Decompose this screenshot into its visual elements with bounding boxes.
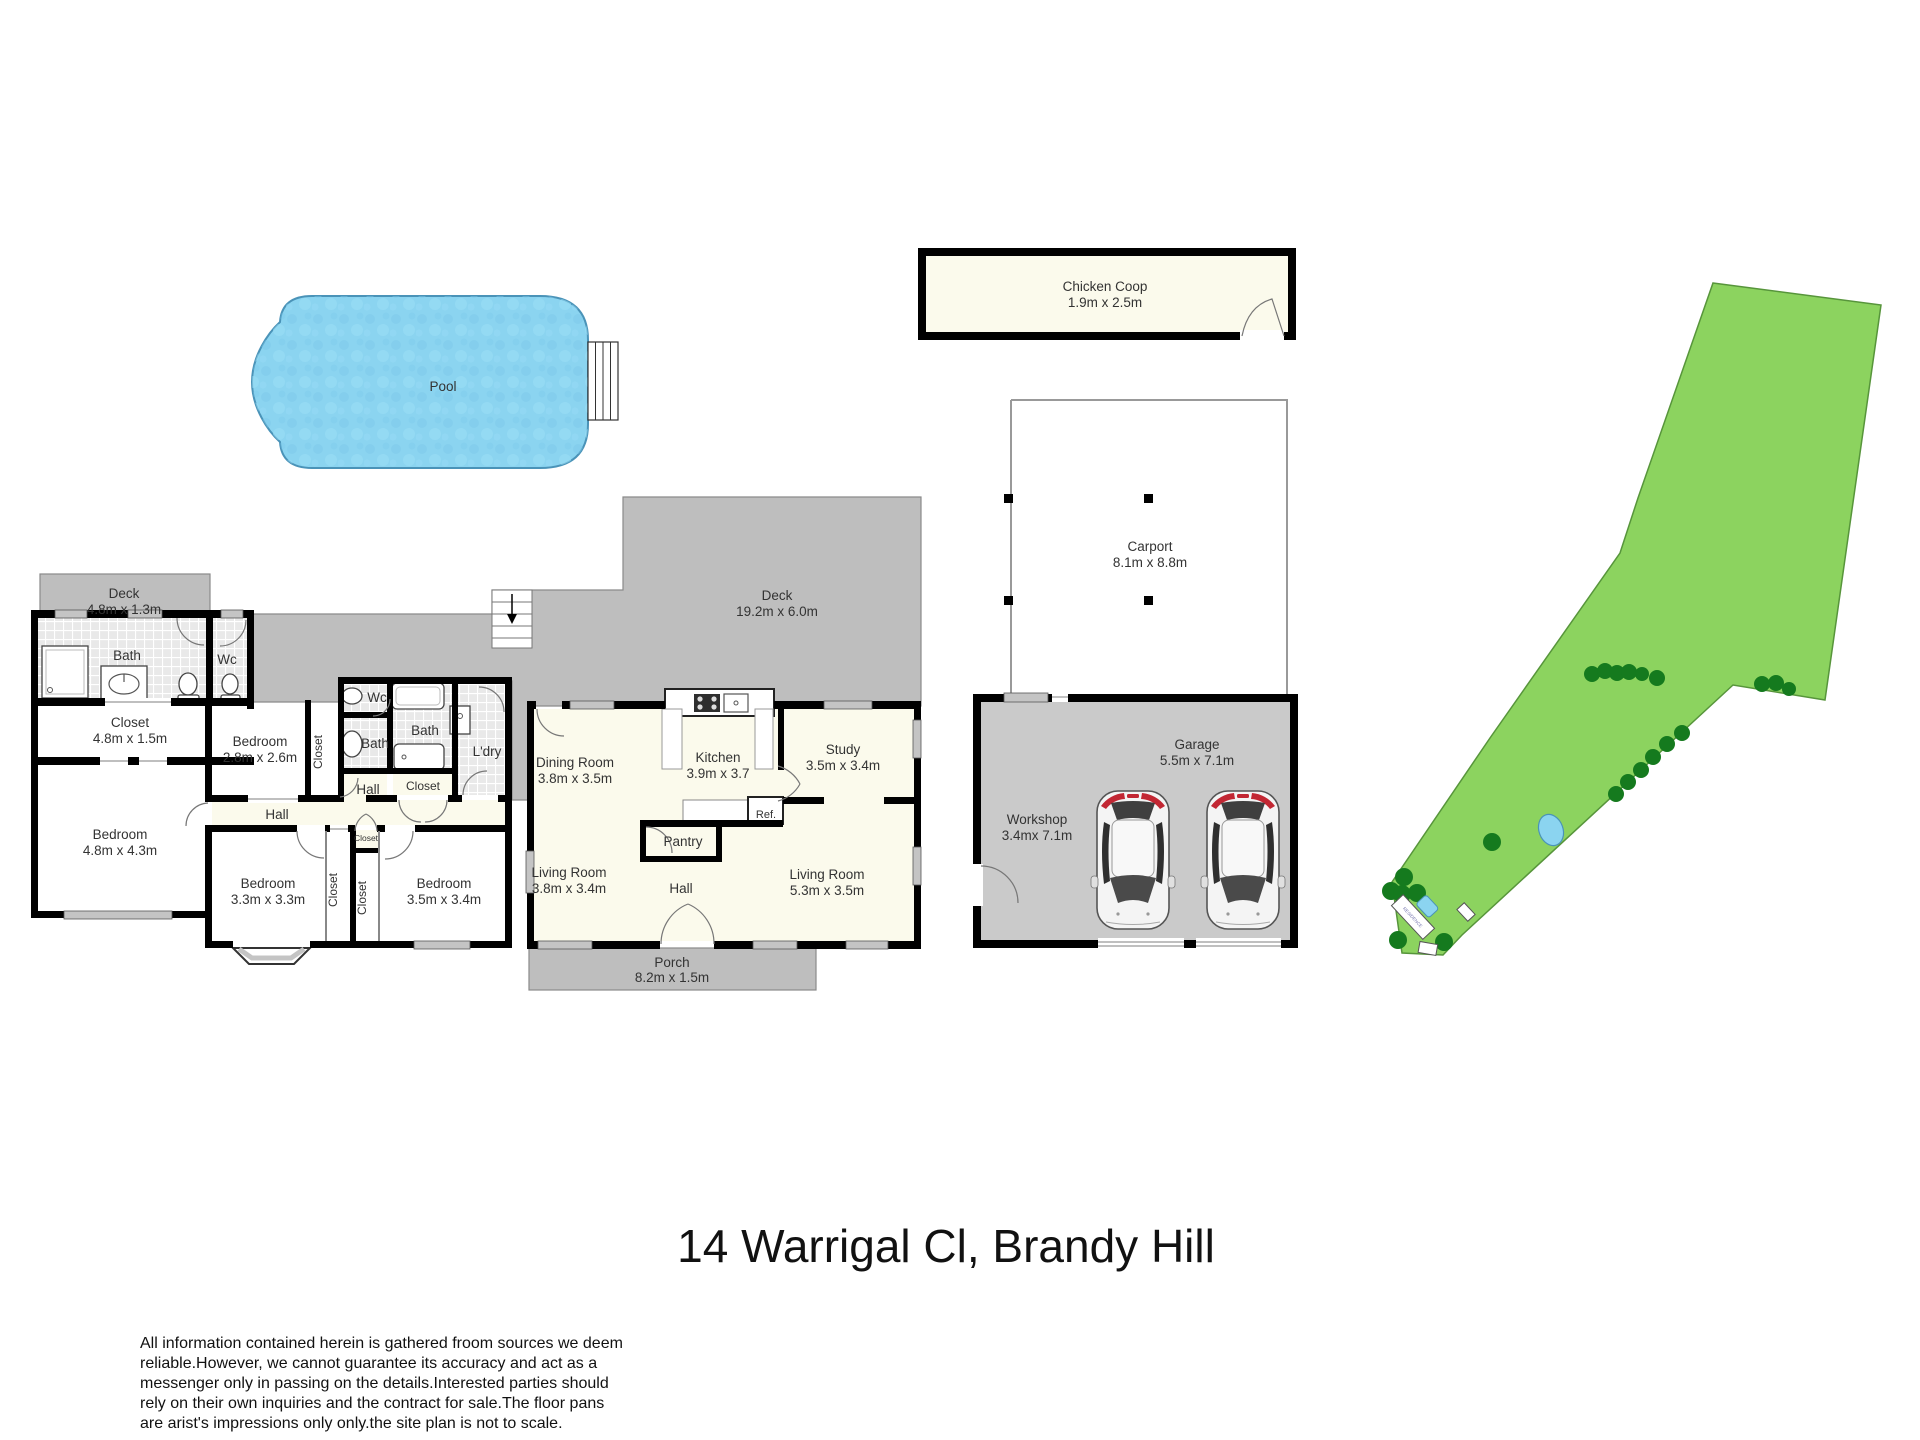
floorplan-canvas: RESIDENCE Pool Chicken Coop 1.9m x 2.5m …	[0, 0, 1920, 1440]
bedroom-d-dims: 3.5m x 3.4m	[407, 892, 481, 907]
garage-dims: 5.5m x 7.1m	[1160, 753, 1234, 768]
ref-label: Ref.	[756, 809, 776, 821]
disclaimer-line: All information contained herein is gath…	[140, 1335, 623, 1352]
garage-door	[1196, 938, 1281, 950]
hall-left-floor	[212, 800, 505, 825]
carport-label: Carport	[1127, 539, 1172, 554]
disclaimer-line: reliable.However, we cannot guarantee it…	[140, 1355, 597, 1372]
bedroom-a-label: Bedroom	[233, 734, 288, 749]
porch-label: Porch	[654, 955, 689, 970]
pool-ladder-icon	[588, 342, 618, 420]
car-icon	[1091, 791, 1175, 929]
basin-icon	[342, 688, 362, 704]
hall-right-label: Hall	[669, 881, 692, 896]
vanity-icon	[101, 666, 147, 702]
bath-mid-a-label: Bath	[361, 736, 389, 751]
bedroom-d-label: Bedroom	[417, 876, 472, 891]
coop-door-gap	[1240, 330, 1284, 342]
basin-icon	[342, 731, 362, 757]
closet-long-label: Closet	[111, 715, 150, 730]
kitchen-counter	[662, 709, 682, 769]
bedroom-a-dims: 2.8m x 2.6m	[223, 750, 297, 765]
fridge-icon: Ref.	[748, 797, 783, 824]
garage-window	[1004, 693, 1048, 702]
kitchen-label: Kitchen	[695, 750, 740, 765]
disclaimer-line: rely on their own inquiries and the cont…	[140, 1395, 604, 1412]
kitchen-dims: 3.9m x 3.7	[686, 766, 749, 781]
carport-post	[1004, 494, 1013, 503]
bedroom-b-dims: 4.8m x 4.3m	[83, 843, 157, 858]
page-title: 14 Warrigal Cl, Brandy Hill	[677, 1220, 1215, 1272]
coop-label: Chicken Coop	[1063, 279, 1148, 294]
deck-large-dims: 19.2m x 6.0m	[736, 604, 818, 619]
deck-large-label: Deck	[762, 588, 793, 603]
kitchen-counter	[755, 709, 773, 769]
disclaimer: All information contained herein is gath…	[140, 1335, 623, 1432]
workshop-dims: 3.4mx 7.1m	[1002, 828, 1073, 843]
pool: Pool	[252, 296, 618, 468]
car-icon	[1201, 791, 1285, 929]
garage-door	[1098, 938, 1184, 950]
bedroom-c-label: Bedroom	[241, 876, 296, 891]
laundry-label: L'dry	[473, 744, 502, 759]
floorplan-page: RESIDENCE Pool Chicken Coop 1.9m x 2.5m …	[0, 0, 1920, 1440]
kitchen-bench	[683, 800, 748, 821]
pool-label: Pool	[429, 379, 456, 394]
dining-dims: 3.8m x 3.5m	[538, 771, 612, 786]
bath-left-label: Bath	[113, 648, 141, 663]
workshop-label: Workshop	[1007, 812, 1068, 827]
porch-dims: 8.2m x 1.5m	[635, 970, 709, 985]
living-a-dims: 3.8m x 3.4m	[532, 881, 606, 896]
living-b-dims: 5.3m x 3.5m	[790, 883, 864, 898]
closet-divider	[378, 831, 380, 941]
chicken-coop: Chicken Coop 1.9m x 2.5m	[922, 252, 1292, 342]
garage-label: Garage	[1174, 737, 1219, 752]
dining-label: Dining Room	[536, 755, 614, 770]
carport-dims: 8.1m x 8.8m	[1113, 555, 1187, 570]
shower-icon	[42, 646, 88, 698]
closet-mid-label: Closet	[406, 779, 441, 793]
closet-c-label: Closet	[355, 880, 369, 915]
closet-b-label: Closet	[326, 872, 340, 907]
bathtub-icon	[392, 683, 444, 709]
wc-left-label: Wc	[217, 652, 237, 667]
living-a-label: Living Room	[531, 865, 606, 880]
wc-mid-label: Wc	[367, 690, 387, 705]
hall-mid-label: Hall	[356, 782, 379, 797]
bedroom-b-label: Bedroom	[93, 827, 148, 842]
coop-dims: 1.9m x 2.5m	[1068, 295, 1142, 310]
carport-post	[1144, 596, 1153, 605]
workshop-door-gap	[969, 864, 983, 906]
pantry-label: Pantry	[663, 834, 702, 849]
closet-a-label: Closet	[311, 734, 325, 769]
pool-texture	[252, 296, 588, 468]
closet-small-label: Closet	[354, 833, 379, 843]
study-label: Study	[826, 742, 861, 757]
hall-left-label: Hall	[265, 807, 288, 822]
bathtub-icon	[394, 744, 444, 770]
closet-long-dims: 4.8m x 1.5m	[93, 731, 167, 746]
stairs-icon	[492, 590, 532, 648]
garage-block: Garage 5.5m x 7.1m Workshop 3.4mx 7.1m	[969, 693, 1294, 950]
bedroom-c-dims: 3.3m x 3.3m	[231, 892, 305, 907]
sink-icon	[724, 694, 748, 712]
stove-icon	[694, 694, 720, 712]
bath-mid-b-label: Bath	[411, 723, 439, 738]
study-dims: 3.5m x 3.4m	[806, 758, 880, 773]
disclaimer-line: messenger only in passing on the details…	[140, 1375, 609, 1392]
deck-small-dims: 4.8m x 1.3m	[87, 602, 161, 617]
toilet-icon	[221, 674, 240, 702]
deck-small-label: Deck	[109, 586, 140, 601]
carport-post	[1144, 494, 1153, 503]
carport-post	[1004, 596, 1013, 605]
living-b-label: Living Room	[789, 867, 864, 882]
disclaimer-line: are arist's impressions only only.the si…	[140, 1415, 563, 1432]
